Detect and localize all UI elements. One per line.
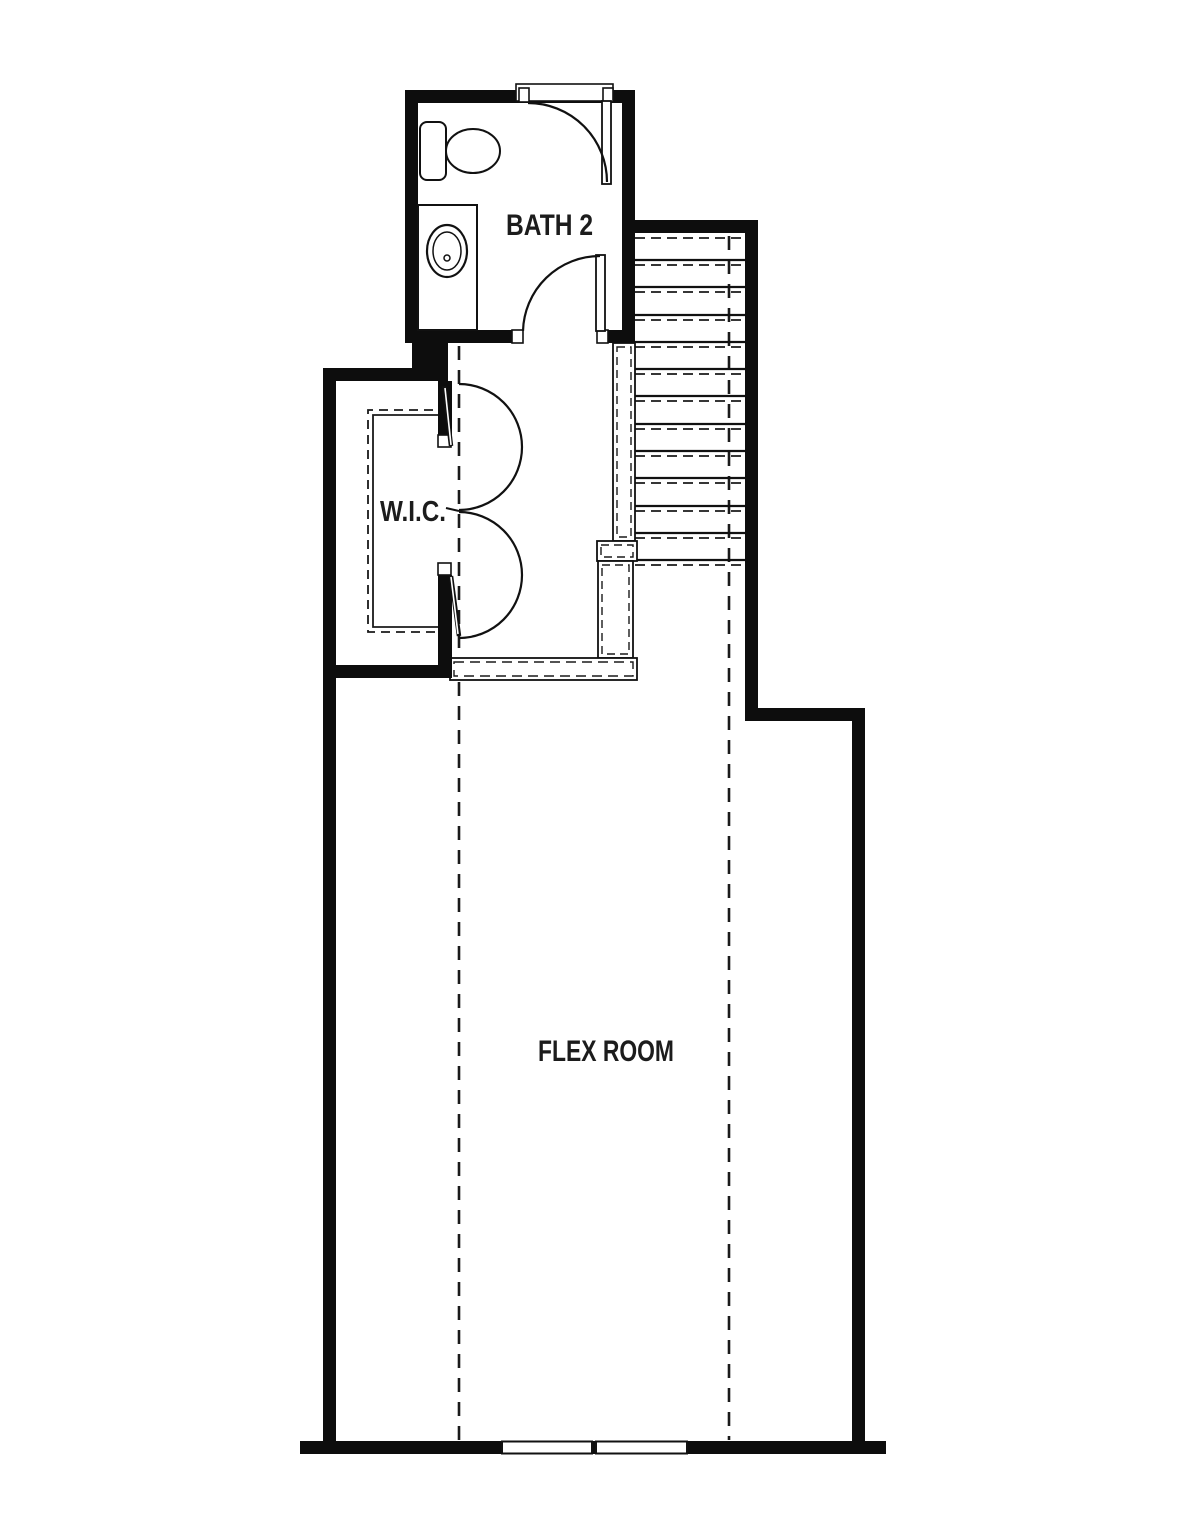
- step-out-wall: [745, 708, 865, 721]
- bath-door-bottom-jamb-left: [512, 330, 523, 343]
- bath-right-wall: [622, 90, 635, 343]
- flex-room-label: FLEX ROOM: [538, 1035, 674, 1068]
- railing-lower: [598, 561, 633, 658]
- wic-front-wall-lower: [438, 575, 452, 665]
- stairs-top-wall: [635, 220, 758, 233]
- toilet-tank: [420, 122, 446, 180]
- sink-basin-inner: [433, 232, 461, 270]
- wic-door-jamb-lower: [438, 563, 451, 575]
- window-left: [502, 1442, 592, 1454]
- floor-plan: BATH 2 W.I.C. FLEX ROOM: [0, 0, 1187, 1536]
- bath-label: BATH 2: [506, 209, 593, 242]
- plan-background: [0, 0, 1187, 1536]
- stairs-right-wall: [745, 220, 758, 721]
- flex-right-wall: [852, 708, 865, 1453]
- bath-left-wall: [405, 90, 418, 343]
- sink-drain: [444, 255, 450, 261]
- wic-label: W.I.C.: [380, 496, 446, 528]
- bath-door-bottom-leaf: [596, 255, 605, 331]
- wic-bottom-wall: [323, 665, 452, 678]
- bath-door-top-jamb-left: [519, 88, 529, 102]
- bath-door-top-jamb-right: [603, 88, 613, 102]
- sink-vanity-icon: [418, 205, 477, 330]
- toilet-bowl: [446, 129, 500, 173]
- railing-newel: [597, 541, 637, 561]
- flex-left-wall: [323, 368, 336, 1453]
- window-right: [596, 1442, 687, 1454]
- wic-top-wall: [323, 368, 448, 381]
- bath-door-bottom-jamb-right: [597, 330, 608, 343]
- bath-door-top-header: [516, 84, 613, 101]
- bath-door-bottom-opening: [523, 329, 597, 344]
